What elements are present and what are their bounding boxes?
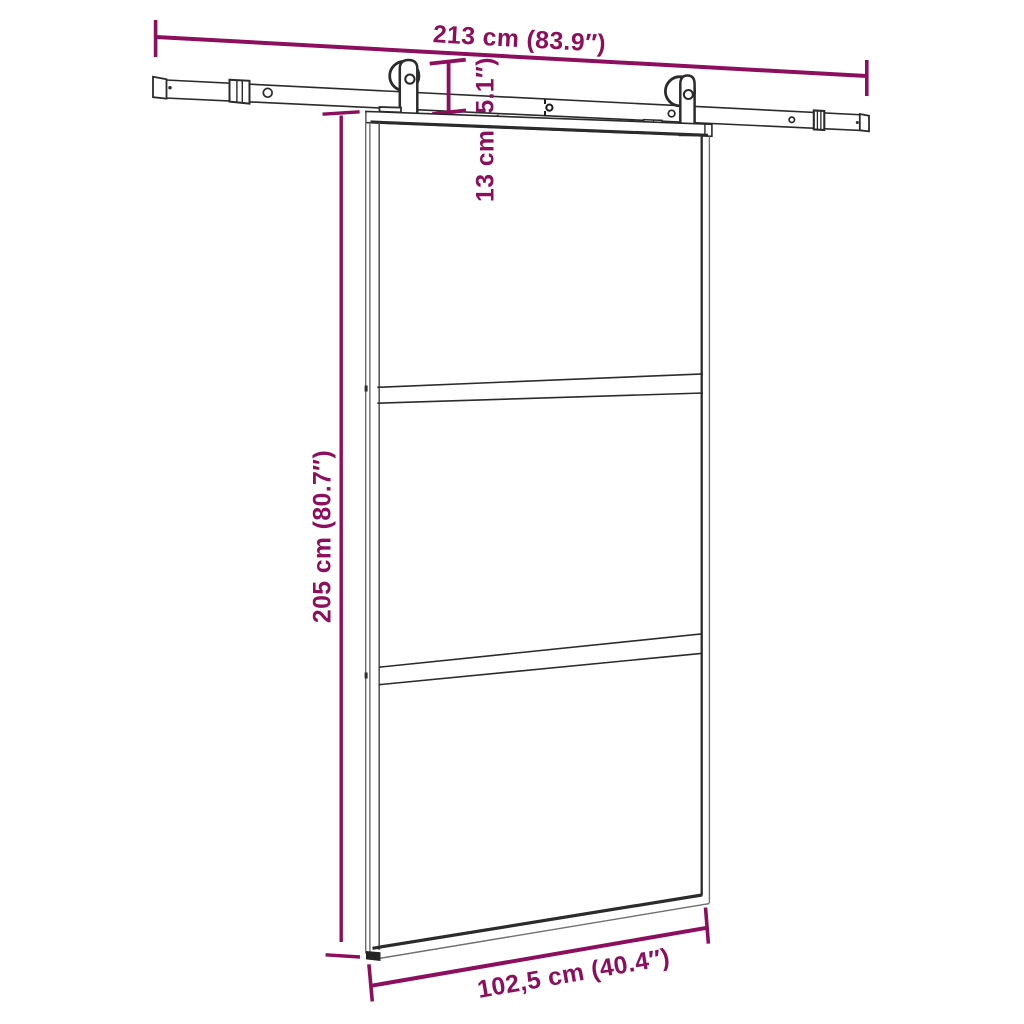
svg-text:13 cm (5.1″): 13 cm (5.1″) [473, 57, 500, 202]
svg-text:205 cm (80.7″): 205 cm (80.7″) [310, 450, 337, 623]
